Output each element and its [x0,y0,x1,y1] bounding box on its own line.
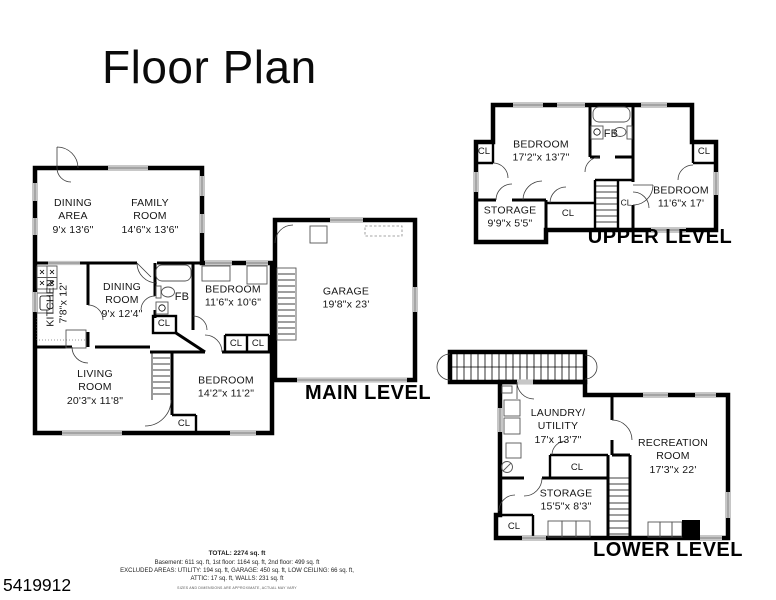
closet-label: CL [252,338,264,350]
room-label-kitchen: KITCHEN 7'8"x 12' [45,279,72,327]
room-label-full-bath-main: FB [175,290,189,304]
summary-floors: Basement: 611 sq. ft, 1st floor: 1164 sq… [67,559,407,567]
area-summary: TOTAL: 2274 sq. ft Basement: 611 sq. ft,… [67,550,407,591]
listing-id: 5419912 [3,575,71,596]
chimney-icon [682,520,700,537]
closet-label: CL [158,318,170,330]
main-level-title: MAIN LEVEL [305,381,431,407]
bathtub-icon [593,107,630,122]
fridge-icon [66,330,86,348]
rec-room-shelves-icon [648,522,682,537]
closet-label: CL [698,146,710,158]
washer-dryer-icon [502,386,521,458]
room-label-storage-upper: STORAGE 9'9"x 5'5" [484,205,537,232]
garage-post-icon [310,226,327,243]
room-label-family-room: FAMILY ROOM 14'6"x 13'6" [121,197,178,237]
bath-sink-icon [156,302,168,314]
garage-stairs-icon [277,268,296,340]
room-label-storage-lower: STORAGE 15'5"x 8'3" [540,488,593,515]
room-label-garage: GARAGE 19'8"x 23' [322,286,369,313]
closet-label: CL [478,146,490,158]
bath-sink-icon [591,126,603,139]
dresser-icon [202,266,230,281]
upper-level-title: UPPER LEVEL [588,225,732,251]
room-label-recreation-room: RECREATION ROOM 17'3"x 22' [638,437,708,477]
closet-label: CL [571,462,583,474]
closet-label: CL [621,198,632,209]
storage-shelves-icon [548,521,590,537]
stairs-icon [596,186,617,228]
wall-diagonal [176,333,205,352]
wall [590,105,633,230]
electrical-panel-icon [502,462,513,473]
stairs-icon [145,352,171,426]
stairs-icon [608,478,630,534]
lower-level-title: LOWER LEVEL [593,538,743,564]
summary-disclaimer: SIZES AND DIMENSIONS ARE APPROXIMATE, AC… [67,586,407,591]
summary-total: TOTAL: 2274 sq. ft [67,550,407,559]
floor-plan-canvas: Floor Plan [0,0,776,600]
room-label-living-room: LIVING ROOM 20'3"x 11'8" [67,368,123,408]
room-label-full-bath-upper: FB [604,127,618,141]
bathtub-icon [156,265,191,281]
garage-shelf-dashed [365,226,402,236]
room-label-bedroom-right-upper: BEDROOM 11'6"x 17' [653,185,709,212]
room-label-dining-area: DINING AREA 9'x 13'6" [52,197,93,237]
room-label-bedroom-middle: BEDROOM 11'6"x 10'6" [205,284,261,311]
room-label-dining-room: DINING ROOM 9'x 12'4" [101,281,142,321]
wall [612,395,630,455]
closet-label: CL [178,418,190,430]
room-label-bedroom-left-upper: BEDROOM 17'2"x 13'7" [512,139,569,166]
summary-excluded-line2: ATTIC: 17 sq. ft, WALLS: 231 sq. ft [67,575,407,583]
closet-label: CL [562,208,574,220]
closet-label: CL [508,521,520,533]
room-label-bedroom-lower: BEDROOM 14'2"x 11'2" [198,375,254,402]
room-label-laundry-utility: LAUNDRY/ UTILITY 17'x 13'7" [531,407,586,447]
dresser-icon [247,266,267,284]
summary-excluded-line1: EXCLUDED AREAS: UTILITY: 194 sq. ft, GAR… [67,567,407,575]
closet-label: CL [230,338,242,350]
stairwell-band [437,352,597,382]
toilet-icon [156,286,175,298]
